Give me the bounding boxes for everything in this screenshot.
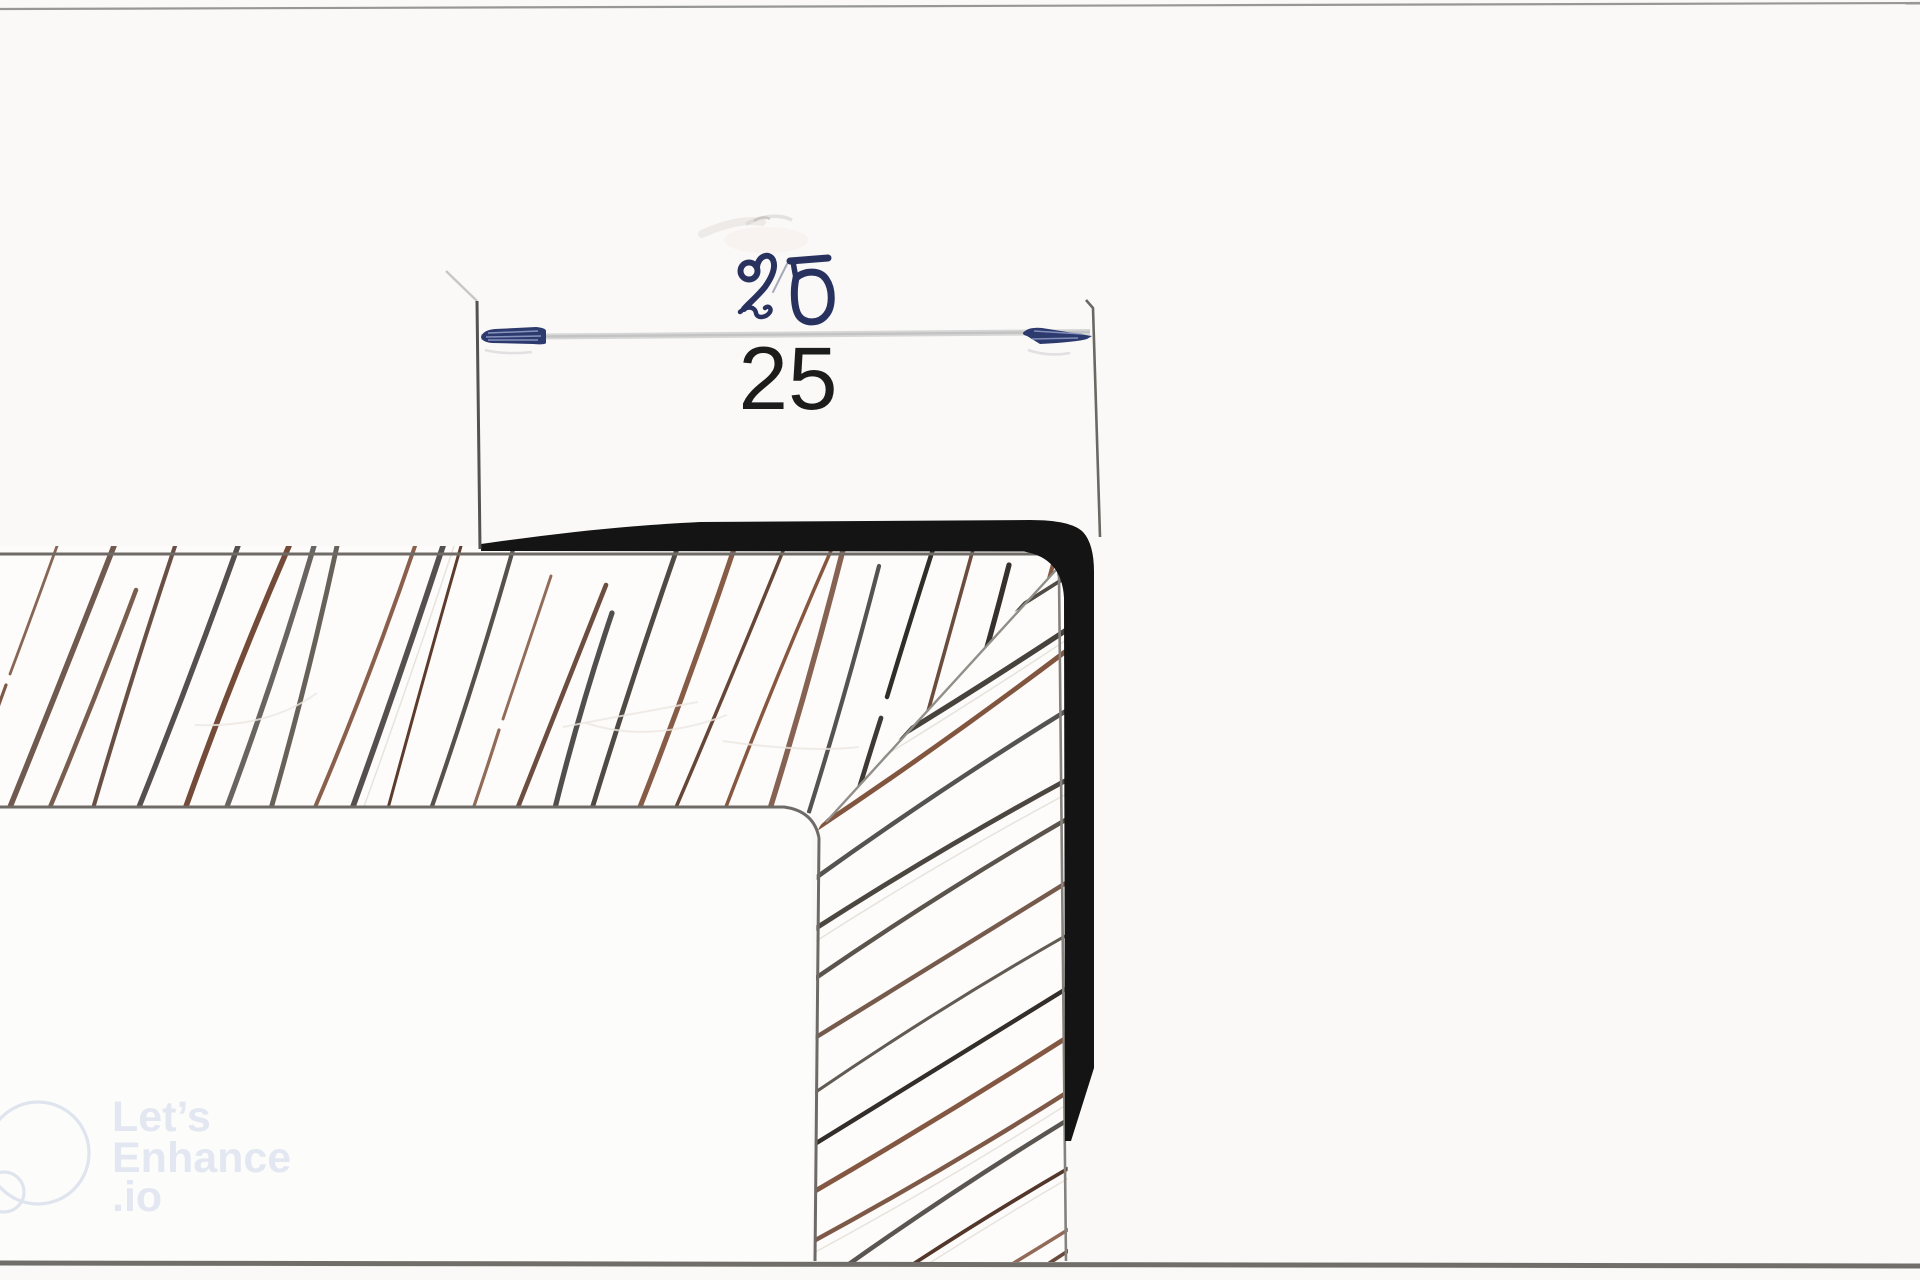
- svg-text:25: 25: [739, 328, 838, 428]
- svg-text:.io: .io: [112, 1173, 162, 1221]
